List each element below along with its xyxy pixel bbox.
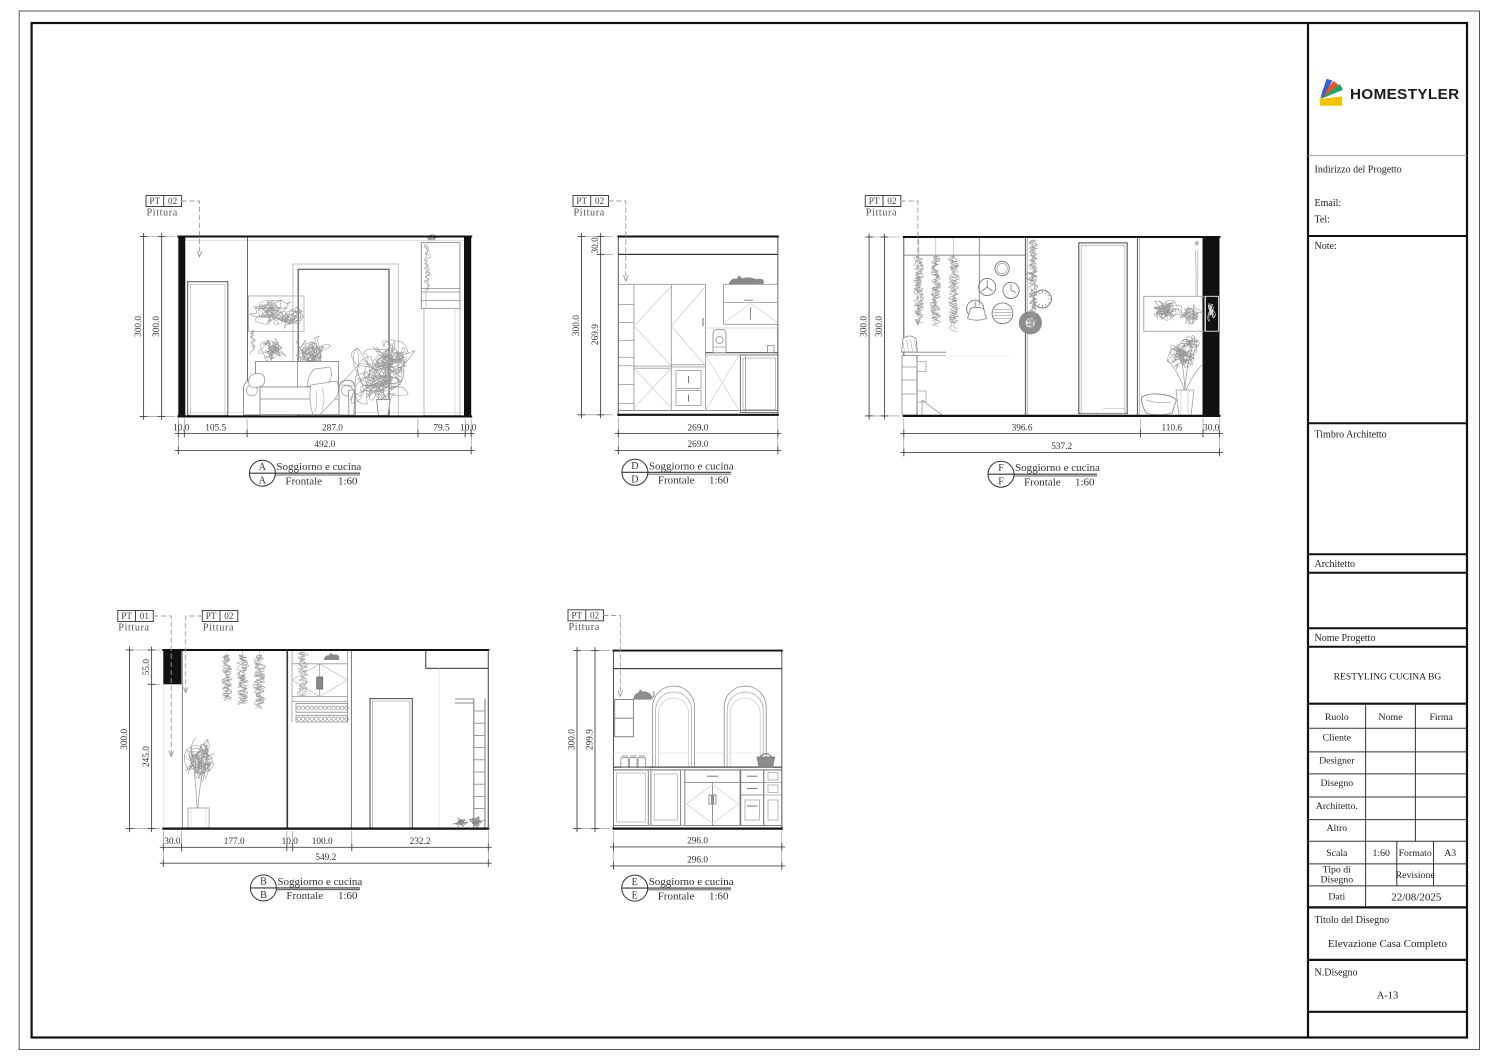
svg-text:Formato: Formato bbox=[1399, 848, 1432, 859]
svg-text:Tel:: Tel: bbox=[1315, 215, 1330, 226]
svg-text:A3: A3 bbox=[1444, 848, 1456, 859]
svg-text:296.0: 296.0 bbox=[687, 856, 708, 866]
svg-text:01: 01 bbox=[140, 611, 150, 621]
svg-text:Soggiorno e cucina: Soggiorno e cucina bbox=[649, 876, 734, 888]
svg-text:Architetto: Architetto bbox=[1315, 559, 1356, 570]
svg-text:A-13: A-13 bbox=[1377, 991, 1399, 1002]
svg-text:10.0: 10.0 bbox=[173, 423, 190, 433]
svg-text:PT: PT bbox=[576, 196, 587, 206]
svg-text:100.0: 100.0 bbox=[312, 837, 333, 847]
svg-text:110.6: 110.6 bbox=[1162, 423, 1183, 433]
svg-text:Note:: Note: bbox=[1315, 241, 1337, 252]
svg-text:269.0: 269.0 bbox=[688, 440, 709, 450]
svg-text:Soggiorno e cucina: Soggiorno e cucina bbox=[1015, 462, 1100, 474]
svg-text:300.0: 300.0 bbox=[134, 316, 144, 337]
svg-text:B: B bbox=[260, 890, 267, 901]
svg-text:N.Disegno: N.Disegno bbox=[1315, 968, 1358, 979]
svg-text:Cliente: Cliente bbox=[1323, 733, 1352, 744]
svg-text:Frontale: Frontale bbox=[285, 475, 322, 487]
svg-text:Revisione: Revisione bbox=[1396, 870, 1436, 881]
svg-text:Pittura: Pittura bbox=[569, 622, 600, 633]
svg-text:10.0: 10.0 bbox=[282, 837, 299, 847]
svg-text:Soggiorno e cucina: Soggiorno e cucina bbox=[276, 461, 361, 473]
svg-text:549.2: 549.2 bbox=[315, 853, 336, 863]
svg-text:10.0: 10.0 bbox=[460, 423, 477, 433]
svg-text:300.0: 300.0 bbox=[120, 728, 130, 749]
svg-text:300.0: 300.0 bbox=[152, 316, 162, 337]
svg-text:30.0: 30.0 bbox=[164, 837, 181, 847]
svg-text:245.0: 245.0 bbox=[142, 746, 152, 767]
svg-text:79.5: 79.5 bbox=[433, 423, 450, 433]
svg-text:Email:: Email: bbox=[1315, 198, 1342, 209]
svg-text:Pittura: Pittura bbox=[866, 208, 897, 219]
svg-text:Frontale: Frontale bbox=[658, 475, 695, 487]
svg-text:Nome: Nome bbox=[1379, 712, 1404, 723]
svg-text:HOMESTYLER: HOMESTYLER bbox=[1350, 86, 1459, 103]
svg-text:Nome Progetto: Nome Progetto bbox=[1315, 633, 1376, 644]
svg-text:A: A bbox=[259, 462, 267, 473]
svg-text:Firma: Firma bbox=[1429, 712, 1453, 723]
svg-text:Pittura: Pittura bbox=[118, 623, 149, 634]
svg-text:Frontale: Frontale bbox=[1024, 476, 1061, 488]
svg-text:296.0: 296.0 bbox=[687, 837, 708, 847]
svg-text:1:60: 1:60 bbox=[709, 890, 729, 902]
svg-text:Pittura: Pittura bbox=[147, 208, 178, 219]
svg-text:02: 02 bbox=[887, 196, 897, 206]
svg-text:Designer: Designer bbox=[1319, 756, 1355, 767]
svg-text:Soggiorno e cucina: Soggiorno e cucina bbox=[277, 876, 362, 888]
svg-text:Timbro Architetto: Timbro Architetto bbox=[1315, 430, 1387, 441]
svg-text:02: 02 bbox=[595, 196, 605, 206]
svg-text:177.0: 177.0 bbox=[224, 837, 245, 847]
svg-text:RESTYLING CUCINA BG: RESTYLING CUCINA BG bbox=[1334, 672, 1442, 683]
svg-text:PT: PT bbox=[869, 196, 880, 206]
svg-text:D: D bbox=[631, 461, 638, 472]
svg-text:269.9: 269.9 bbox=[591, 324, 601, 345]
svg-text:300.0: 300.0 bbox=[860, 316, 870, 337]
svg-text:1:60: 1:60 bbox=[1075, 476, 1095, 488]
svg-text:300.0: 300.0 bbox=[568, 729, 578, 750]
svg-text:PT: PT bbox=[149, 196, 160, 206]
svg-text:22/08/2025: 22/08/2025 bbox=[1391, 892, 1442, 904]
svg-text:Dati: Dati bbox=[1328, 892, 1345, 903]
svg-text:E: E bbox=[632, 877, 638, 888]
svg-text:B: B bbox=[260, 877, 267, 888]
svg-text:396.6: 396.6 bbox=[1012, 423, 1033, 433]
svg-text:1:60: 1:60 bbox=[709, 475, 729, 487]
svg-text:F: F bbox=[998, 476, 1004, 487]
svg-text:Frontale: Frontale bbox=[658, 890, 695, 902]
svg-text:Frontale: Frontale bbox=[286, 890, 323, 902]
svg-text:105.5: 105.5 bbox=[205, 423, 226, 433]
svg-text:Titolo del Disegno: Titolo del Disegno bbox=[1315, 915, 1390, 926]
svg-text:Scala: Scala bbox=[1326, 848, 1348, 859]
svg-text:Elevazione Casa Completo: Elevazione Casa Completo bbox=[1328, 938, 1448, 950]
svg-text:Pittura: Pittura bbox=[203, 623, 234, 634]
svg-text:Architetto.: Architetto. bbox=[1316, 801, 1358, 812]
svg-text:Altro: Altro bbox=[1326, 823, 1347, 834]
svg-text:E: E bbox=[632, 890, 638, 901]
svg-text:Ruolo: Ruolo bbox=[1325, 712, 1349, 723]
svg-text:1:60: 1:60 bbox=[1372, 848, 1390, 859]
svg-text:PT: PT bbox=[571, 610, 582, 620]
svg-text:300.0: 300.0 bbox=[572, 315, 582, 336]
svg-text:02: 02 bbox=[168, 196, 178, 206]
svg-text:55.0: 55.0 bbox=[142, 659, 152, 676]
svg-text:30.0: 30.0 bbox=[591, 237, 601, 254]
svg-text:287.0: 287.0 bbox=[322, 423, 343, 433]
svg-text:299.9: 299.9 bbox=[586, 729, 596, 750]
svg-text:A: A bbox=[259, 475, 267, 486]
svg-text:PT: PT bbox=[121, 611, 132, 621]
svg-text:Disegno: Disegno bbox=[1320, 875, 1353, 886]
svg-text:Disegno: Disegno bbox=[1320, 778, 1353, 789]
svg-text:PT: PT bbox=[206, 611, 217, 621]
svg-text:D: D bbox=[631, 475, 638, 486]
svg-text:537.2: 537.2 bbox=[1051, 442, 1072, 452]
svg-text:269.0: 269.0 bbox=[688, 423, 709, 433]
svg-text:Pittura: Pittura bbox=[574, 208, 605, 219]
svg-text:Indirizzo del Progetto: Indirizzo del Progetto bbox=[1315, 165, 1402, 176]
svg-text:Soggiorno e cucina: Soggiorno e cucina bbox=[649, 460, 734, 472]
svg-text:300.0: 300.0 bbox=[875, 316, 885, 337]
svg-text:1:60: 1:60 bbox=[338, 890, 358, 902]
svg-text:232.2: 232.2 bbox=[410, 837, 431, 847]
svg-text:30.0: 30.0 bbox=[1203, 423, 1220, 433]
svg-text:F: F bbox=[998, 463, 1004, 474]
svg-text:1:60: 1:60 bbox=[338, 475, 358, 487]
svg-text:02: 02 bbox=[224, 611, 234, 621]
svg-text:492.0: 492.0 bbox=[314, 440, 335, 450]
svg-text:02: 02 bbox=[590, 610, 600, 620]
